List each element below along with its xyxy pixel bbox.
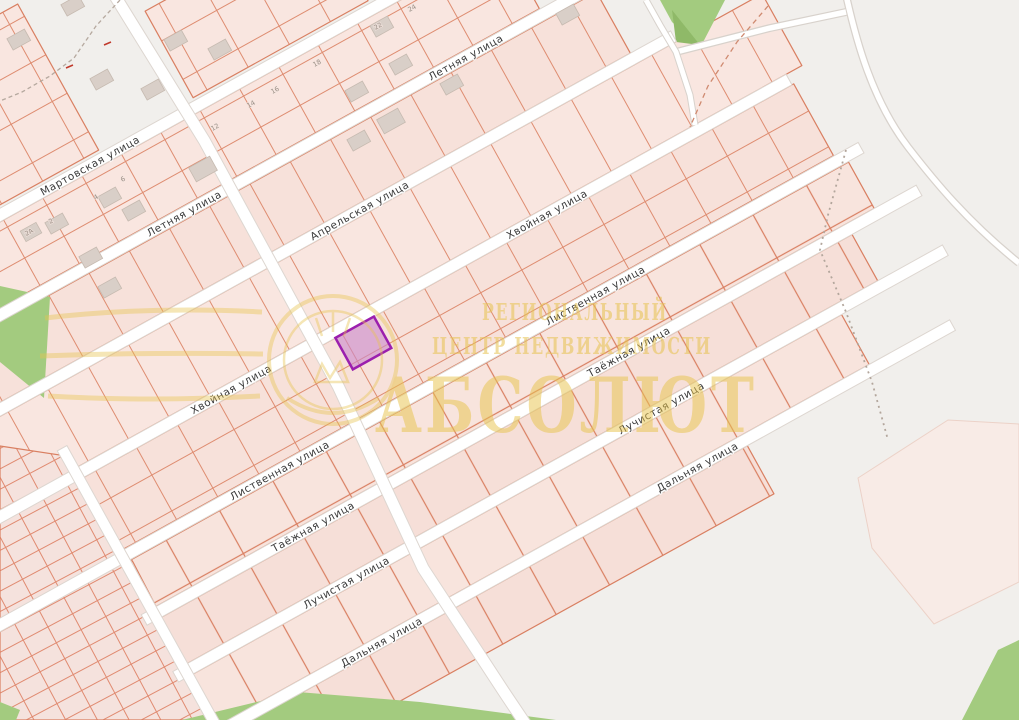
- watermark-line2: ЦЕНТР НЕДВИЖИМОСТИ: [432, 333, 712, 360]
- map-viewport[interactable]: Мартовская улица Летняя улица Летняя ули…: [0, 0, 1019, 720]
- watermark-line3: АБСОЛЮТ: [375, 361, 757, 450]
- map-canvas[interactable]: Мартовская улица Летняя улица Летняя ули…: [0, 0, 1019, 720]
- watermark-line1: РЕГИОНАЛЬНЫЙ: [482, 297, 668, 326]
